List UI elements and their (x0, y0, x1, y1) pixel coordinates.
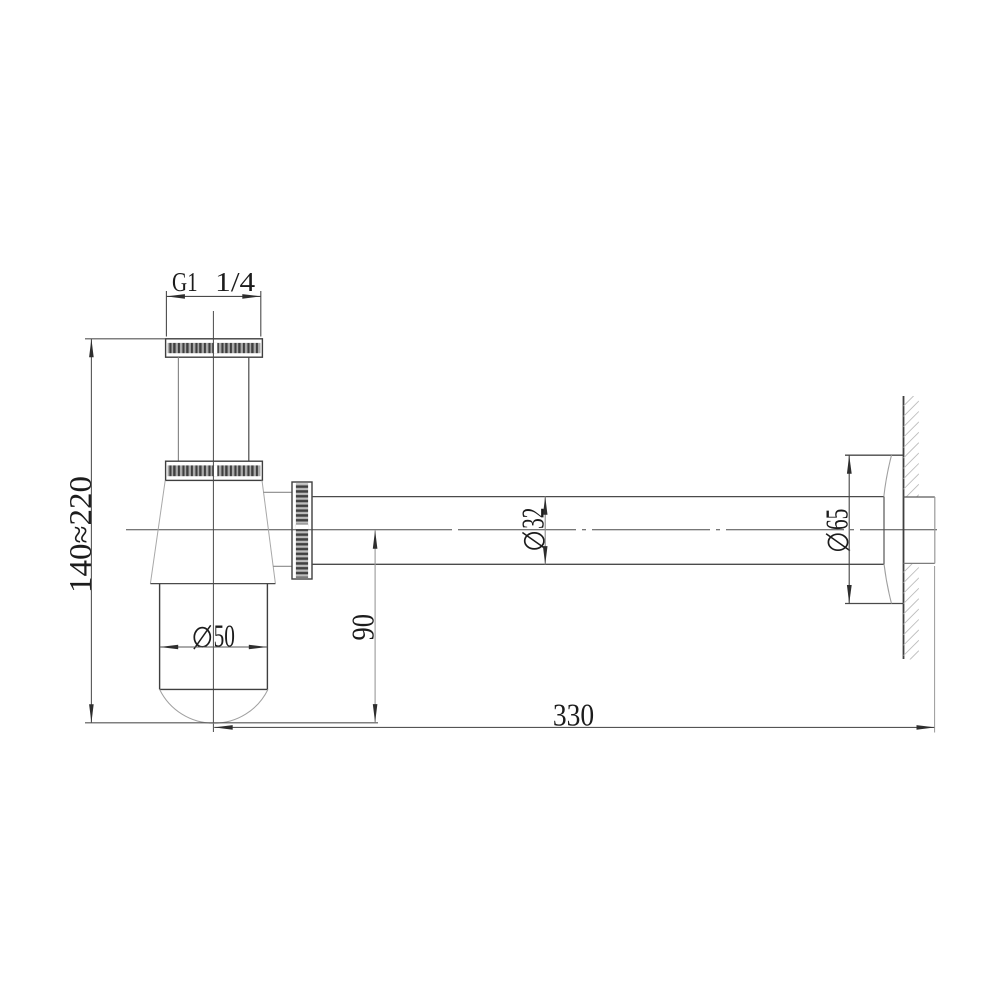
svg-text:1/4: 1/4 (215, 267, 256, 297)
svg-text:50: 50 (214, 619, 235, 654)
svg-text:G1: G1 (172, 267, 198, 297)
svg-text:140≈220: 140≈220 (63, 476, 98, 593)
